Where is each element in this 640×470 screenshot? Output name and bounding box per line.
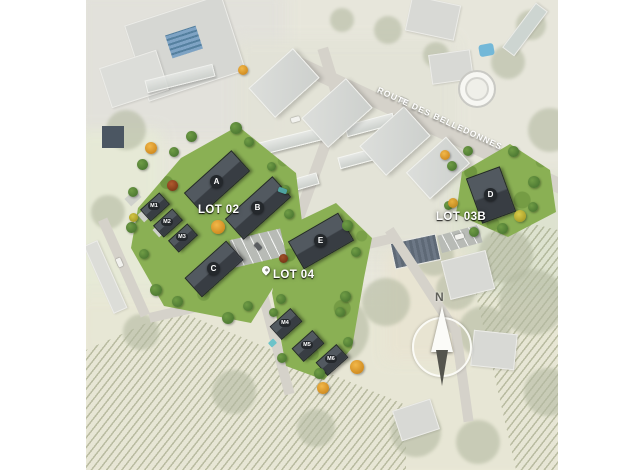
accent-tree-orange: [238, 65, 248, 75]
house-label-m2: M2: [161, 218, 173, 226]
tree: [340, 291, 351, 302]
faded-tree: [330, 8, 354, 32]
north-label: N: [435, 290, 444, 304]
tree: [126, 222, 137, 233]
house-label-m5: M5: [301, 341, 313, 349]
tree: [269, 308, 278, 317]
tree: [528, 176, 540, 188]
tree: [139, 249, 149, 259]
accent-tree-orange: [448, 198, 458, 208]
faded-tree: [297, 409, 335, 447]
accent-tree-red: [167, 180, 178, 191]
accent-tree-yellow: [514, 210, 526, 222]
building-label-e: E: [314, 234, 327, 247]
north-arrow-tail: [436, 350, 448, 386]
existing-building: [102, 126, 124, 148]
lot-04-label: LOT 04: [273, 269, 314, 281]
tree: [314, 368, 325, 379]
accent-tree-orange: [145, 142, 157, 154]
house-label-m4: M4: [279, 319, 291, 327]
tree: [137, 159, 148, 170]
tree: [335, 307, 345, 317]
accent-tree-orange: [211, 220, 225, 234]
tree: [469, 227, 479, 237]
house-label-m1: M1: [148, 202, 160, 210]
faded-tree: [528, 108, 558, 152]
faded-tree: [212, 370, 256, 414]
building-label-a: A: [210, 175, 223, 188]
accent-tree-red: [279, 254, 288, 263]
tree: [528, 202, 538, 212]
accent-tree-orange: [317, 382, 329, 394]
tree: [508, 146, 519, 157]
tree: [276, 294, 286, 304]
existing-building: [470, 330, 518, 370]
tree: [169, 147, 179, 157]
existing-building: [405, 0, 461, 41]
tree: [150, 284, 162, 296]
tree: [172, 296, 183, 307]
lot-03b-label: LOT 03B: [436, 211, 486, 223]
tree: [186, 131, 197, 142]
house-label-m6: M6: [325, 355, 337, 363]
north-arrow: [431, 306, 453, 352]
tree: [244, 137, 254, 147]
tree: [230, 122, 242, 134]
lot-02-label: LOT 02: [198, 204, 239, 216]
tree: [342, 220, 353, 231]
house-label-m3: M3: [176, 233, 188, 241]
building-label-d: D: [484, 188, 497, 201]
site-plan-image: A B C D E M1 M2 M3 M4 M5 M6 LOT 02 LOT 0…: [0, 0, 640, 470]
tree: [267, 162, 276, 171]
tree: [343, 337, 353, 347]
tree: [497, 223, 508, 234]
tree: [447, 161, 457, 171]
aerial-photo: A B C D E M1 M2 M3 M4 M5 M6 LOT 02 LOT 0…: [86, 0, 558, 470]
tree: [222, 312, 234, 324]
building-label-c: C: [207, 262, 220, 275]
accent-tree-orange: [440, 150, 450, 160]
tree: [243, 301, 253, 311]
faded-tree: [374, 16, 402, 44]
accent-tree-yellow: [129, 213, 138, 222]
tree: [463, 146, 473, 156]
tree: [284, 209, 294, 219]
faded-tree: [362, 278, 410, 326]
tree: [128, 187, 138, 197]
tree: [277, 353, 287, 363]
tree: [351, 247, 361, 257]
water-tank: [458, 70, 496, 108]
faded-tree: [456, 420, 500, 464]
accent-tree-orange: [350, 360, 364, 374]
building-label-b: B: [251, 201, 264, 214]
swimming-pool: [478, 43, 495, 57]
